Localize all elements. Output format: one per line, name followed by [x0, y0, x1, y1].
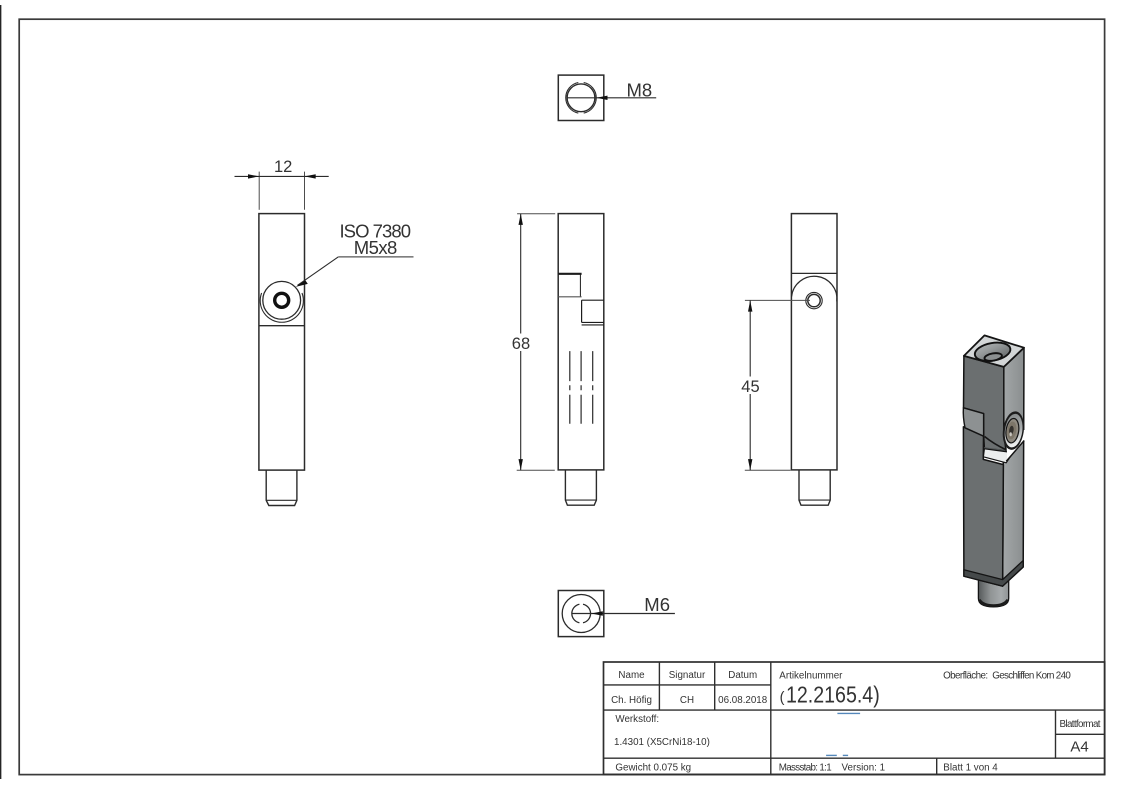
svg-text:45: 45 — [741, 378, 759, 396]
svg-text:12: 12 — [274, 158, 292, 176]
svg-text:68: 68 — [512, 335, 530, 353]
svg-text:Gewicht 0.075 kg: Gewicht 0.075 kg — [615, 762, 691, 773]
svg-text:Oberfläche:: Oberfläche: — [943, 671, 988, 682]
svg-text:12.2165.4): 12.2165.4) — [786, 681, 880, 708]
svg-text:Massstab: 1:1: Massstab: 1:1 — [779, 762, 832, 773]
svg-text:A4: A4 — [1070, 739, 1088, 756]
svg-text:M6: M6 — [644, 594, 670, 615]
svg-text:06.08.2018: 06.08.2018 — [718, 695, 768, 706]
svg-text:1.4301 (X5CrNi18-10): 1.4301 (X5CrNi18-10) — [614, 737, 710, 748]
svg-text:M8: M8 — [627, 79, 653, 100]
svg-text:Ch. Höfig: Ch. Höfig — [611, 695, 652, 706]
svg-text:Werkstoff:: Werkstoff: — [615, 714, 659, 725]
svg-text:CH: CH — [680, 695, 694, 706]
svg-text:Signatur: Signatur — [669, 670, 706, 681]
svg-text:M5x8: M5x8 — [354, 237, 398, 258]
svg-text:Blattformat: Blattformat — [1060, 719, 1101, 730]
svg-text:(: ( — [780, 690, 785, 706]
svg-text:Geschliffen Korn 240: Geschliffen Korn 240 — [992, 671, 1071, 682]
svg-text:Version: 1: Version: 1 — [842, 762, 886, 773]
svg-text:Datum: Datum — [728, 670, 757, 681]
svg-text:Name: Name — [618, 670, 645, 681]
svg-text:Blatt 1 von 4: Blatt 1 von 4 — [943, 762, 998, 773]
